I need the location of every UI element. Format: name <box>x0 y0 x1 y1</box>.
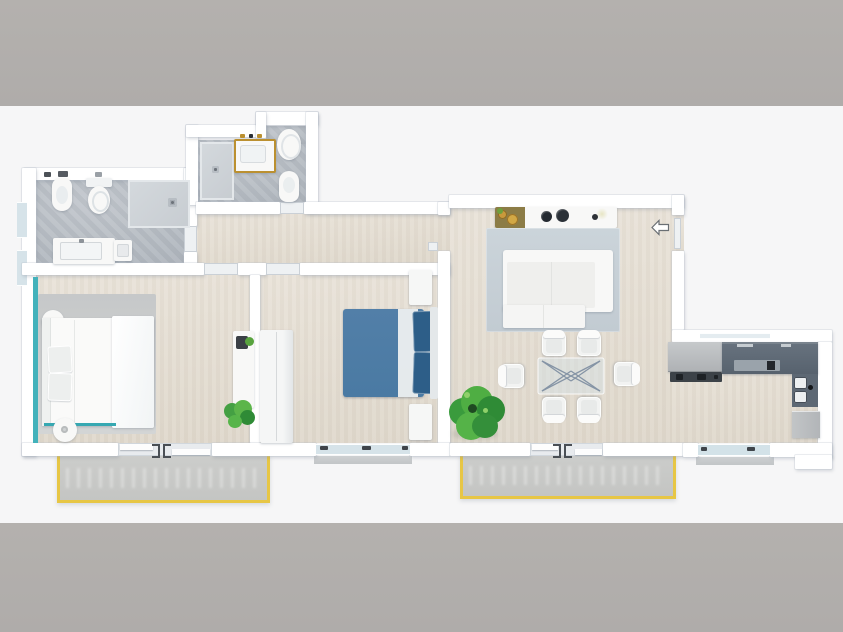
wall-bathroom-second-top <box>186 125 266 137</box>
cooktop-burner-1 <box>676 374 683 380</box>
window-kitchen-top <box>700 333 770 339</box>
dining-table-glass <box>536 355 606 397</box>
floor-hallway <box>186 214 450 263</box>
window-bedroom-2-handle-1 <box>320 446 328 450</box>
balcony-center <box>460 454 676 499</box>
kitchen-counter-item <box>767 361 775 370</box>
kitchen-base-cabinet <box>792 411 820 438</box>
wall-bottom-e <box>603 443 683 456</box>
entrance-door-leaf <box>674 218 681 249</box>
wall-living-right-a <box>672 195 684 215</box>
kitchen-sink-basin-1 <box>794 377 807 389</box>
sideboard-bowl-1 <box>541 211 552 222</box>
tray-plate-2 <box>507 214 518 225</box>
balcony-left-texture <box>66 468 261 489</box>
wall-bottom-a <box>22 443 118 456</box>
shower-main-drain <box>168 198 177 207</box>
shower-main <box>128 180 190 228</box>
entrance-arrow-icon <box>651 219 670 236</box>
bed-1-pillow-1 <box>47 345 72 373</box>
toilet-main-seat <box>92 191 109 212</box>
window-left-wall-1 <box>17 202 27 238</box>
sofa-chaise <box>503 305 585 328</box>
desk-plant <box>245 337 254 346</box>
wall-right-outer <box>818 342 832 458</box>
toilet-second-seat <box>281 134 301 159</box>
window-sill-bedroom-2 <box>314 456 412 464</box>
wall-hallway-bottom-b <box>238 263 266 275</box>
door-bedroom-1 <box>204 263 238 275</box>
balcony-center-texture <box>469 466 666 485</box>
tree-highlight-2 <box>483 408 488 413</box>
vanity-second-basin <box>240 145 266 163</box>
wall-bottom-step <box>795 455 832 469</box>
wall-bottom-c <box>410 443 450 456</box>
door-leaf-hallway-living <box>428 242 438 251</box>
sideboard-plant-pot <box>592 214 598 220</box>
kitchen-handle-1 <box>737 344 753 347</box>
vanity-main-basin <box>60 242 102 260</box>
sliding-door-living-handle-right <box>564 444 572 458</box>
window-kitchen-handle-1 <box>701 447 707 451</box>
bed-1-blanket <box>112 316 154 428</box>
bed-2-headboard <box>430 307 438 399</box>
bed-1-pillow-2 <box>48 373 73 402</box>
dining-chair-top-right <box>577 330 601 356</box>
bottom-gray-bar <box>0 523 843 632</box>
wall-hallway-top-a <box>196 202 280 214</box>
sliding-door-living-panel-right <box>575 449 602 455</box>
window-kitchen <box>698 444 770 456</box>
kitchen-appliance-column <box>668 342 722 372</box>
window-bedroom-2-handle-3 <box>402 446 408 450</box>
dining-chair-bottom-left <box>542 397 566 423</box>
balcony-left <box>57 455 270 503</box>
wardrobe-door-seam <box>276 332 277 441</box>
cooktop-burner-2 <box>697 374 706 380</box>
bathroom-main-accessory <box>44 172 51 177</box>
dining-chair-top-left <box>542 330 566 356</box>
sideboard-bowl-2 <box>556 209 569 222</box>
kitchen-sink-basin-2 <box>794 391 807 403</box>
vanity-second-accessory-1 <box>240 134 245 138</box>
nightstand-lamp <box>61 426 68 433</box>
kitchen-faucet <box>808 385 813 390</box>
sliding-door-bedroom-1-panel-left <box>120 444 153 450</box>
window-sill-kitchen <box>696 457 774 465</box>
cooktop-knob <box>714 375 718 379</box>
sliding-door-bedroom-1-panel-right <box>172 449 210 455</box>
nightstand-bedroom-2-bottom <box>409 404 432 440</box>
sofa-seat-seam <box>551 262 552 308</box>
flush-plate-1 <box>58 171 68 177</box>
wall-bottom-d <box>450 443 530 456</box>
wall-bathroom-second-right <box>306 112 318 212</box>
wall-hallway-bottom-a <box>22 263 204 275</box>
sofa-chaise-seam <box>543 305 544 328</box>
vanity-main-faucet <box>79 239 84 243</box>
wall-living-right-b <box>672 251 684 330</box>
flush-plate-2 <box>95 172 102 177</box>
bidet-second-bowl <box>283 177 295 193</box>
floor-plan-render <box>0 0 843 632</box>
dining-chair-bottom-right <box>577 397 601 423</box>
nightstand-bedroom-2-top <box>409 270 432 305</box>
door-bathroom-main <box>184 226 197 252</box>
sliding-door-living-handle-left <box>553 444 561 458</box>
dining-chair-right <box>614 362 640 386</box>
bidet-main-bowl <box>56 186 68 204</box>
tree-foliage-e <box>472 414 498 438</box>
dining-chair-left <box>498 364 524 388</box>
wall-hallway-top-b <box>304 202 450 214</box>
vanity-second-accessory-3 <box>257 134 262 138</box>
plant-bedroom-1-d <box>228 415 242 428</box>
wall-bottom-b <box>212 443 316 456</box>
bathroom-main-side-unit-inset <box>117 244 129 257</box>
sideboard-plant-sprigs <box>596 208 608 220</box>
shower-second-drain <box>212 166 219 173</box>
sofa-main <box>503 250 613 312</box>
tray-garnish <box>497 208 503 214</box>
tree-trunk <box>468 404 477 413</box>
sliding-door-bedroom-1-handle-right <box>163 444 171 458</box>
dining-table-base-drawing <box>536 355 606 397</box>
door-bathroom-second <box>280 202 304 214</box>
wall-bottom-f <box>683 443 698 457</box>
bed-1-duvet-seam <box>74 320 75 424</box>
sliding-door-bedroom-1-handle-left <box>152 444 160 458</box>
tree-highlight-1 <box>464 392 470 398</box>
top-gray-bar <box>0 0 843 106</box>
vanity-second-accessory-2 <box>249 134 253 138</box>
window-kitchen-handle-2 <box>747 447 755 451</box>
door-bedroom-2 <box>266 263 300 275</box>
kitchen-handle-2 <box>781 344 791 347</box>
plant-bedroom-1-c <box>240 410 255 425</box>
window-bedroom-2-handle-2 <box>362 446 371 450</box>
